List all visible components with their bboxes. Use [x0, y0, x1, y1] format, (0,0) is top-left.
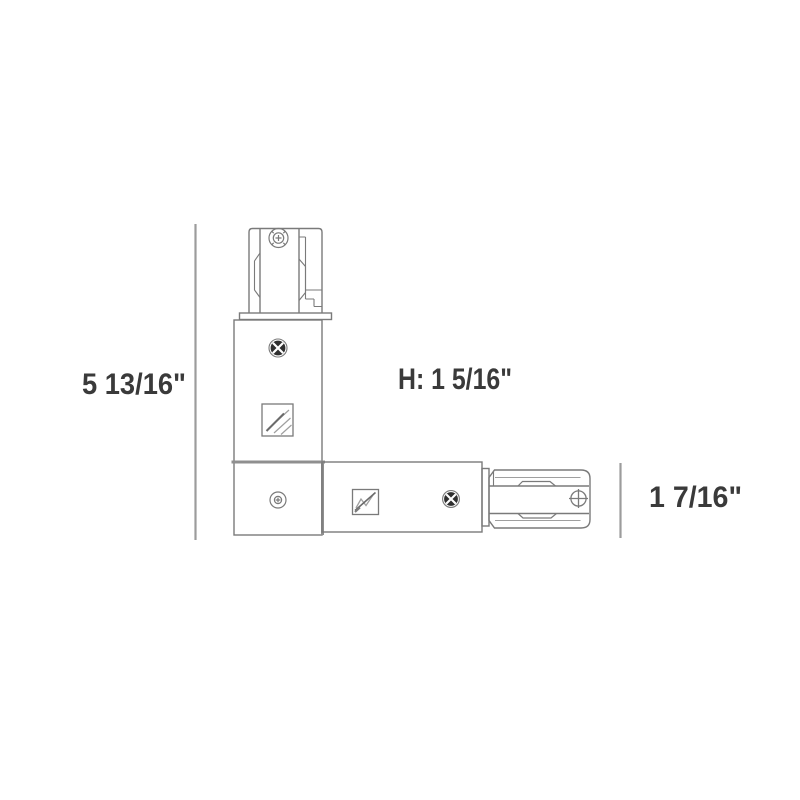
- top-connector-slot-left: [255, 253, 261, 298]
- vertical-body: [234, 320, 322, 462]
- width-dimension-label: 1 7/16": [649, 481, 742, 514]
- horizontal-arm-outline: [322, 462, 482, 532]
- top-connector: [240, 229, 332, 320]
- arm-screw-icon: [443, 491, 460, 508]
- corner-section: [232, 462, 326, 535]
- track-connector-dimension-drawing: 5 13/16" H: 1 5/16" 1 7/16": [0, 0, 800, 800]
- arm-label: [353, 490, 379, 515]
- body-screw-icon: [269, 339, 287, 357]
- top-connector-base-plate: [240, 313, 332, 320]
- top-connector-step-detail: [306, 290, 323, 307]
- height-dimension-label: 5 13/16": [82, 368, 186, 401]
- corner-screw-icon: [270, 492, 286, 508]
- depth-dimension-label: H: 1 5/16": [398, 363, 512, 396]
- right-connector-mid-lines: [489, 486, 589, 514]
- screw-cross: [276, 235, 282, 241]
- dimension-height: 5 13/16": [82, 224, 196, 540]
- top-connector-channel: [299, 237, 306, 299]
- end-screw-icon: [569, 489, 588, 508]
- top-connector-screw-icon: [269, 229, 288, 248]
- arm-end-stub: [482, 469, 489, 527]
- body-label: [262, 404, 293, 436]
- dimension-width: 1 7/16": [621, 463, 743, 538]
- top-connector-slot-right: [299, 259, 306, 301]
- diagram-canvas: 5 13/16" H: 1 5/16" 1 7/16": [0, 0, 800, 800]
- screw-cross: [569, 489, 588, 508]
- horizontal-arm: [322, 462, 489, 532]
- right-connector: [489, 470, 590, 528]
- screw-cross: [276, 498, 281, 503]
